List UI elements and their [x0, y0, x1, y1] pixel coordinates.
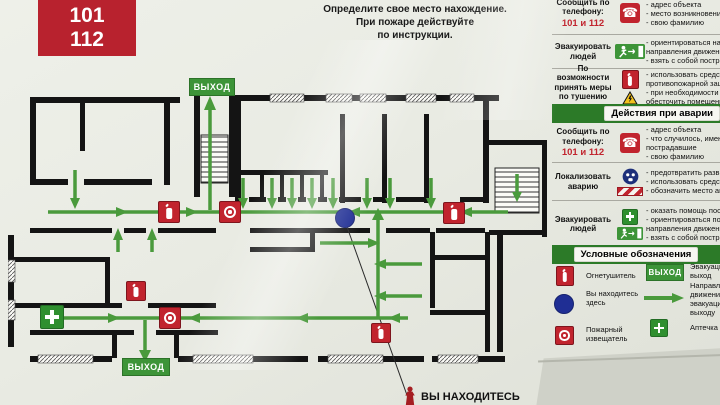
- phone-icon: ☎: [620, 3, 640, 23]
- panel-row-call: Сообщить по телефону: 101 и 112 ☎ - адре…: [552, 123, 720, 163]
- phone-numbers: 101 и 112: [552, 19, 614, 29]
- panel-row-evacuate: Эвакуировать людей - оказать помощь пост…: [552, 201, 720, 248]
- first-aid-icon: [40, 305, 64, 329]
- action-bullets: - предотвратить развитие - использовать …: [646, 168, 720, 195]
- person-icon: [404, 386, 416, 405]
- panel-row-extinguish: По возможности принять меры по тушению п…: [552, 69, 720, 107]
- phone-numbers: 101 и 112: [552, 148, 614, 158]
- evacuation-plan-photo: ВЫХОД ВЫХОД ВЫ НАХОДИТЕСЬ ЗВОНИТЬ 101 11…: [0, 0, 720, 405]
- exit-sign-top: ВЫХОД: [189, 78, 235, 96]
- exit-run-icon: [617, 227, 643, 240]
- emergency-actions-header: Действия при аварии: [552, 104, 720, 123]
- extinguisher-icon: [158, 201, 180, 223]
- call-number-101: 101: [38, 4, 136, 28]
- floor-plan-drawing: [8, 78, 553, 405]
- you-are-here-dot: [335, 208, 355, 228]
- extinguisher-icon: [622, 70, 639, 89]
- exit-run-icon: [615, 44, 645, 59]
- walls-layer: [8, 95, 547, 362]
- emergency-call-box: ЗВОНИТЬ 101 112: [38, 0, 136, 56]
- panel-row-localize: Локализовать аварию - предотвратить разв…: [552, 163, 720, 201]
- action-bullets: - ориентироваться на знаки направления д…: [646, 38, 720, 65]
- direction-arrow: [644, 292, 684, 304]
- panel-row-call: Сообщить по телефону: 101 и 112 ☎ - адре…: [552, 0, 720, 35]
- action-label: Локализовать аварию: [552, 172, 614, 191]
- legend-label: Направление движения к эвакуационному вы…: [690, 281, 720, 317]
- legend-label: Эвакуационный выход: [690, 262, 720, 280]
- legend-label: Вы находитесь здесь: [586, 289, 641, 307]
- gas-mask-icon: [622, 168, 639, 185]
- phone-icon: ☎: [620, 133, 640, 153]
- top-instruction: Определите свое место нахождение. При по…: [300, 3, 530, 42]
- extinguisher-icon: [556, 266, 574, 286]
- legend-label: Аптечка: [690, 323, 720, 332]
- action-label: Сообщить по телефону: 101 и 112: [552, 127, 614, 158]
- action-label: Сообщить по телефону: 101 и 112: [552, 0, 614, 28]
- call-number-112: 112: [38, 28, 136, 52]
- action-label: Эвакуировать людей: [552, 215, 614, 234]
- first-aid-icon: [650, 319, 668, 337]
- fire-detector-icon: [159, 307, 181, 329]
- fire-detector-icon: [219, 201, 241, 223]
- electric-hazard-icon: [622, 91, 638, 105]
- exit-sign: ВЫХОД: [646, 264, 684, 281]
- fire-actions-panel: Сообщить по телефону: 101 и 112 ☎ - адре…: [552, 0, 720, 107]
- first-aid-icon: [622, 209, 638, 225]
- extinguisher-icon: [371, 323, 391, 343]
- extinguisher-icon: [126, 281, 146, 301]
- action-bullets: - адрес объекта - что случилось, имеются…: [646, 125, 720, 161]
- staircase-top: [201, 135, 228, 183]
- emergency-actions-panel: Сообщить по телефону: 101 и 112 ☎ - адре…: [552, 123, 720, 248]
- fire-detector-icon: [555, 326, 574, 345]
- barrier-tape-icon: [617, 187, 643, 196]
- you-are-here-dot: [554, 294, 574, 314]
- exit-sign-bottom: ВЫХОД: [122, 358, 170, 376]
- legend-panel: Огнетушитель Вы находитесь здесь Пожарны…: [552, 264, 720, 356]
- action-label: Эвакуировать людей: [552, 42, 614, 61]
- action-bullets: - оказать помощь пострадавшим - ориентир…: [646, 206, 720, 242]
- action-bullets: - адрес объекта - место возникновения - …: [646, 0, 720, 27]
- action-bullets: - использовать средства противопожарной …: [646, 70, 720, 106]
- extinguisher-icon: [443, 202, 465, 224]
- you-are-here-label: ВЫ НАХОДИТЕСЬ: [421, 391, 520, 403]
- legend-label: Пожарный извещатель: [586, 325, 641, 343]
